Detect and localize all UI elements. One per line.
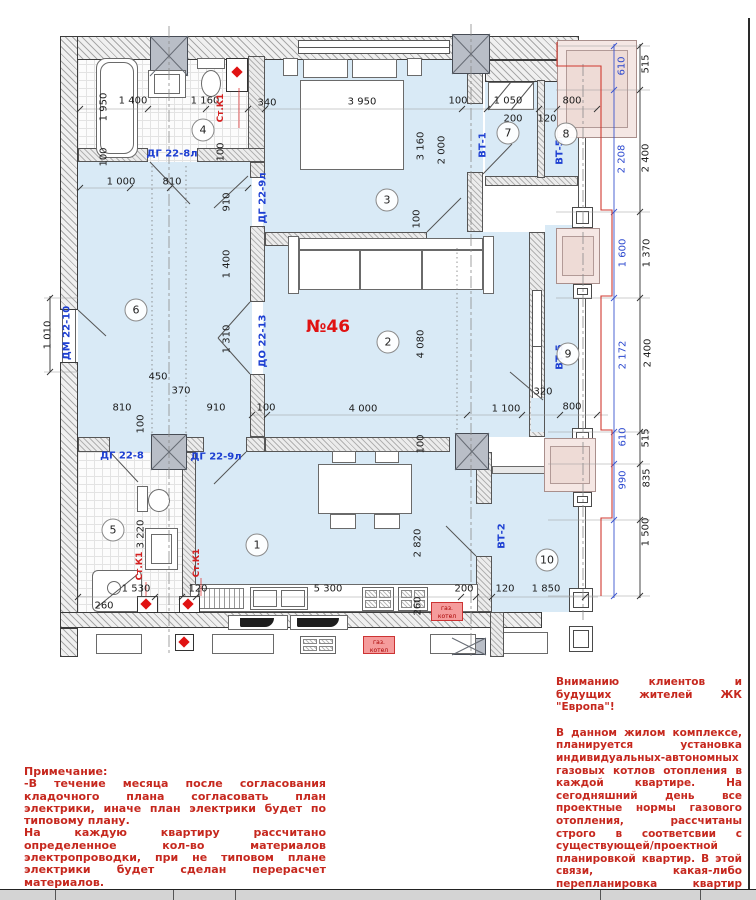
kitchen-sink-bowl <box>253 590 277 607</box>
dim-label: 1 400 <box>119 96 148 107</box>
dim-label: 1 950 <box>99 93 110 122</box>
gas-boiler-label: газ. <box>441 605 453 612</box>
dim-label: 370 <box>171 386 190 397</box>
dim-label: 3 160 <box>416 132 427 161</box>
structural-column <box>452 34 490 74</box>
dim-label: 610 <box>618 427 629 446</box>
stove <box>362 587 394 611</box>
lower-flat-fixture <box>430 634 476 654</box>
gas-boiler-label: газ. <box>373 639 385 646</box>
dim-label: 4 000 <box>349 404 378 415</box>
wall-segment <box>537 80 545 178</box>
gas-boiler-label: котел <box>370 647 388 654</box>
riser-label-stk1: Ст.К1 <box>135 552 145 581</box>
note-left-paragraph: -В течение месяца после согласования кла… <box>24 778 326 827</box>
lower-flat-counter <box>240 618 274 627</box>
dim-label: 340 <box>257 98 276 109</box>
table-divider <box>700 890 701 900</box>
door-label-dg229l: ДГ 22-9л <box>258 172 269 223</box>
bed-pillow <box>352 59 397 78</box>
dim-label: 100 <box>136 414 147 433</box>
ac-unit-inner <box>562 236 594 276</box>
window-band <box>298 40 450 54</box>
apartment-number: №46 <box>306 317 350 337</box>
dim-label: 800 <box>562 402 581 413</box>
lower-flat-counter <box>297 618 339 627</box>
sink-bowl <box>154 74 180 94</box>
riser-label-stk1: Ст.К1 <box>192 549 202 578</box>
wall-segment <box>485 176 578 186</box>
room-number-2: 2 <box>377 331 400 354</box>
nightstand <box>407 58 422 76</box>
room-number-3: 3 <box>376 189 399 212</box>
bottom-table-strip <box>0 889 756 900</box>
door-opening-vt2 <box>476 504 492 556</box>
dim-label: 610 <box>617 56 628 75</box>
note-right-title: Вниманию клиентов и будущих жителей ЖК "… <box>556 676 742 714</box>
wall-segment <box>60 628 78 657</box>
floor-plan-drawing: 1 950 100 100 1 400 1 160 340 3 950 100 … <box>0 0 756 660</box>
wall-segment <box>60 362 78 640</box>
note-left-paragraph: На каждую квартиру рассчитано определенн… <box>24 827 326 888</box>
dim-label: 515 <box>641 54 652 73</box>
dim-label: 4 080 <box>416 330 427 359</box>
bed <box>300 80 404 170</box>
wall-segment <box>467 172 483 232</box>
dim-label: 810 <box>112 403 131 414</box>
table-divider <box>55 890 56 900</box>
toilet-tank <box>137 486 148 512</box>
dim-label: 260 <box>94 601 113 612</box>
vent-label-vt1: ВТ-1 <box>478 132 489 158</box>
dim-label: 1 100 <box>492 404 521 415</box>
dim-label: 2 172 <box>618 341 629 370</box>
room-number-9: 9 <box>557 343 580 366</box>
room-number-1: 1 <box>246 534 269 557</box>
table-divider <box>173 890 174 900</box>
riser-label-stk1: Ст.К1 <box>216 94 226 123</box>
dim-label: 1 500 <box>641 518 652 547</box>
dim-label: 100 <box>412 209 423 228</box>
gas-boiler-box: газ. котел <box>431 602 463 621</box>
dim-label: 1 530 <box>122 584 151 595</box>
dim-label: 200 <box>454 584 473 595</box>
sofa-armrest <box>288 236 299 294</box>
dim-label: 450 <box>148 372 167 383</box>
sheet-right-border <box>748 18 750 890</box>
door-label-do2213: ДО 22-13 <box>258 315 269 368</box>
dim-label: 2 820 <box>413 529 424 558</box>
dim-label: 515 <box>641 428 652 447</box>
room-number-4: 4 <box>192 119 215 142</box>
dining-chair <box>374 514 400 529</box>
lower-flat-stove <box>300 636 336 654</box>
dim-label: 100 <box>416 434 427 453</box>
door-label-dg228: ДГ 22-8 <box>100 451 144 462</box>
structural-column <box>151 434 187 470</box>
note-right: Вниманию клиентов и будущих жителей ЖК "… <box>556 676 742 900</box>
dim-label: 1 400 <box>222 250 233 279</box>
dim-label: 100 <box>448 96 467 107</box>
dim-label: 120 <box>537 114 556 125</box>
dim-label: 2 400 <box>641 144 652 173</box>
facade-column <box>569 626 593 652</box>
dim-label: 100 <box>99 147 110 166</box>
vent-label-vt2: ВТ-2 <box>497 523 508 549</box>
dim-label: 100 <box>256 403 275 414</box>
structural-column <box>455 433 489 470</box>
dim-label: 1 010 <box>43 321 54 350</box>
room-number-5: 5 <box>102 519 125 542</box>
sofa-seat <box>299 250 483 290</box>
dim-label: 910 <box>206 403 225 414</box>
bed-pillow <box>303 59 348 78</box>
dim-label: 835 <box>642 468 653 487</box>
wall-segment <box>490 612 504 657</box>
dim-label: 120 <box>188 584 207 595</box>
wall-segment <box>246 437 265 452</box>
floorplan-sheet: 1 950 100 100 1 400 1 160 340 3 950 100 … <box>0 0 756 900</box>
wall-segment <box>476 556 492 612</box>
dining-chair <box>375 451 399 463</box>
wall-segment <box>186 437 204 452</box>
wall-segment <box>197 148 265 162</box>
table-divider <box>600 890 601 900</box>
sofa-armrest <box>483 236 494 294</box>
wall-segment <box>250 226 265 302</box>
facade-column <box>569 588 593 612</box>
room-number-8: 8 <box>555 123 578 146</box>
wall-segment <box>60 36 78 310</box>
dim-label: 3 950 <box>348 97 377 108</box>
ac-unit-inner <box>550 446 590 484</box>
table-divider <box>235 890 236 900</box>
dim-label: 260 <box>413 596 424 615</box>
note-left: Примечание: -В течение месяца после согл… <box>24 766 326 900</box>
facade-column <box>573 492 592 507</box>
dim-label: 2 208 <box>617 145 628 174</box>
dim-label: 1 310 <box>222 325 233 354</box>
dim-label: 5 300 <box>314 584 343 595</box>
dining-table <box>318 464 412 514</box>
dim-label: 3 220 <box>136 520 147 549</box>
toilet-tank <box>197 58 225 69</box>
window-band <box>532 290 542 402</box>
door-opening-vt5 <box>531 398 544 432</box>
toilet-bowl <box>148 489 170 512</box>
sofa-back <box>299 238 483 250</box>
dim-label: 1 050 <box>494 96 523 107</box>
lower-flat-fixture <box>212 634 274 654</box>
kitchen-sink-bowl <box>281 590 305 607</box>
dim-label: 100 <box>216 142 227 161</box>
lower-flat-fixture <box>96 634 142 654</box>
room-number-6: 6 <box>125 299 148 322</box>
shower-drain <box>107 581 121 595</box>
dim-label: 910 <box>222 192 233 211</box>
note-right-body: В данном жилом комплексе, планируется ус… <box>556 727 742 900</box>
room-number-10: 10 <box>536 549 559 572</box>
dim-label: 2 400 <box>643 339 654 368</box>
gas-boiler-label: котел <box>438 613 456 620</box>
wall-segment <box>248 56 265 162</box>
door-label-dg228l: ДГ 22-8л <box>146 149 197 160</box>
facade-column <box>572 207 593 228</box>
nightstand <box>283 58 298 76</box>
sink-bowl <box>151 534 172 564</box>
room-number-7: 7 <box>497 122 520 145</box>
facade-column <box>573 284 592 299</box>
gas-boiler-box: газ. котел <box>363 636 395 654</box>
dim-label: 1 600 <box>618 239 629 268</box>
dim-label: 120 <box>495 584 514 595</box>
dim-label: 2 000 <box>437 136 448 165</box>
door-label-dm2210: ДМ 22-10 <box>62 306 73 360</box>
dim-label: 800 <box>562 96 581 107</box>
door-label-dg229l: ДГ 22-9л <box>190 452 241 463</box>
dining-chair <box>330 514 356 529</box>
dining-chair <box>332 451 356 463</box>
dim-label: 320 <box>533 387 552 398</box>
dim-label: 990 <box>618 470 629 489</box>
dim-label: 810 <box>162 177 181 188</box>
dim-label: 1 370 <box>642 239 653 268</box>
dim-label: 1 000 <box>107 177 136 188</box>
dim-label: 1 850 <box>532 584 561 595</box>
